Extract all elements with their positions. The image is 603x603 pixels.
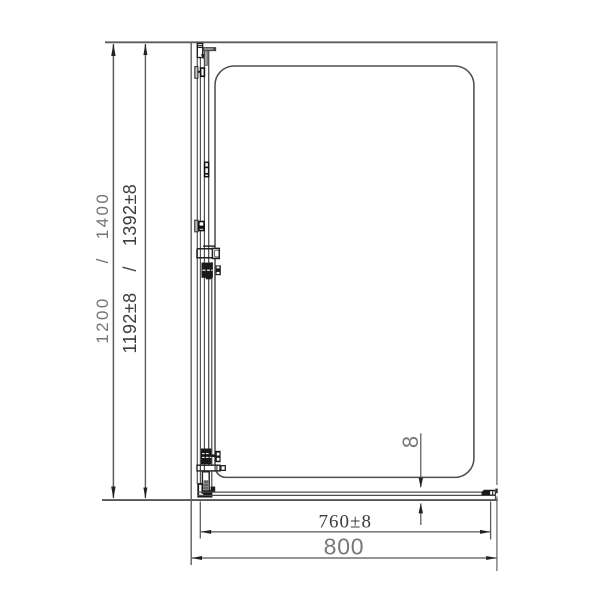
svg-text:1192±8: 1192±8 <box>120 293 140 354</box>
svg-text:/: / <box>93 258 112 263</box>
svg-text:1400: 1400 <box>93 192 112 239</box>
svg-text:/: / <box>120 266 140 271</box>
svg-text:760±8: 760±8 <box>319 511 372 532</box>
svg-text:8: 8 <box>398 436 423 448</box>
svg-text:1200: 1200 <box>93 296 112 343</box>
svg-text:800: 800 <box>324 534 365 560</box>
svg-text:1392±8: 1392±8 <box>120 184 140 246</box>
